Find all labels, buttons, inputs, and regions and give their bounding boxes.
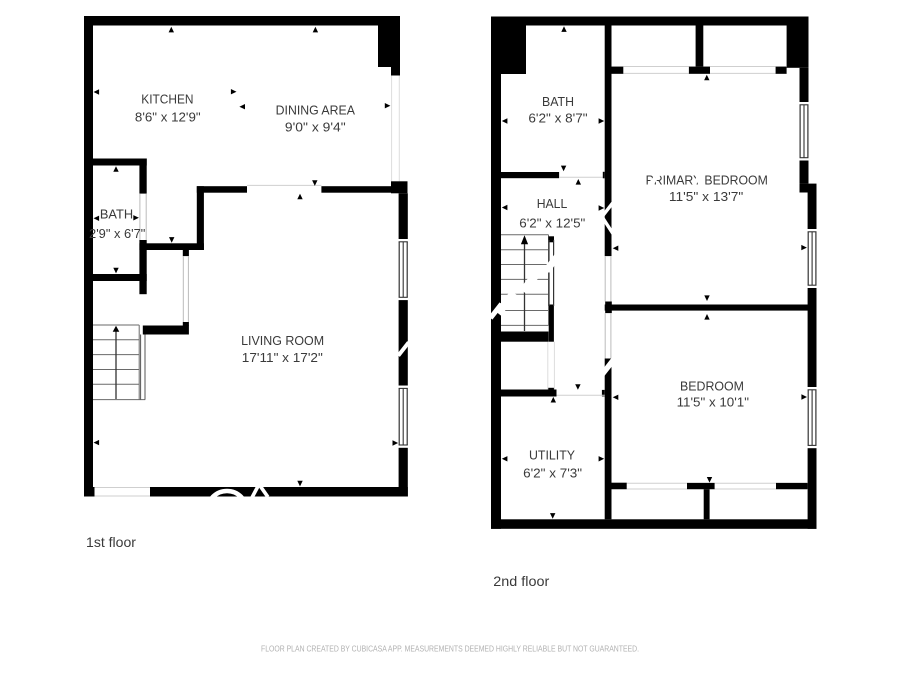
svg-text:FLOOR PLAN CREATED BY CUBICASA: FLOOR PLAN CREATED BY CUBICASA APP. MEAS… [261,645,639,654]
svg-text:BEDROOM: BEDROOM [680,380,744,394]
svg-text:KITCHEN: KITCHEN [141,92,193,106]
svg-text:BATH: BATH [542,95,574,109]
svg-text:8'6" x 12'9": 8'6" x 12'9" [135,110,201,125]
svg-text:1st floor: 1st floor [86,534,136,550]
svg-text:6'2" x 8'7": 6'2" x 8'7" [528,110,588,125]
svg-text:PRIMARY BEDROOM: PRIMARY BEDROOM [646,174,768,188]
svg-text:DINING AREA: DINING AREA [276,103,356,117]
svg-text:LIVING ROOM: LIVING ROOM [241,334,324,348]
svg-text:9'0" x 9'4": 9'0" x 9'4" [285,119,346,134]
svg-text:UTILITY: UTILITY [529,449,576,463]
svg-text:2nd floor: 2nd floor [493,573,549,589]
svg-text:HALL: HALL [537,197,568,211]
svg-text:2'9" x 6'7": 2'9" x 6'7" [89,226,146,241]
svg-text:11'5" x 13'7": 11'5" x 13'7" [669,189,744,204]
svg-text:6'2" x 7'3": 6'2" x 7'3" [523,465,582,480]
svg-text:17'11" x 17'2": 17'11" x 17'2" [242,350,323,365]
svg-text:BATH: BATH [100,207,133,221]
svg-text:6'2" x 12'5": 6'2" x 12'5" [519,215,585,230]
svg-text:11'5" x 10'1": 11'5" x 10'1" [677,395,750,410]
